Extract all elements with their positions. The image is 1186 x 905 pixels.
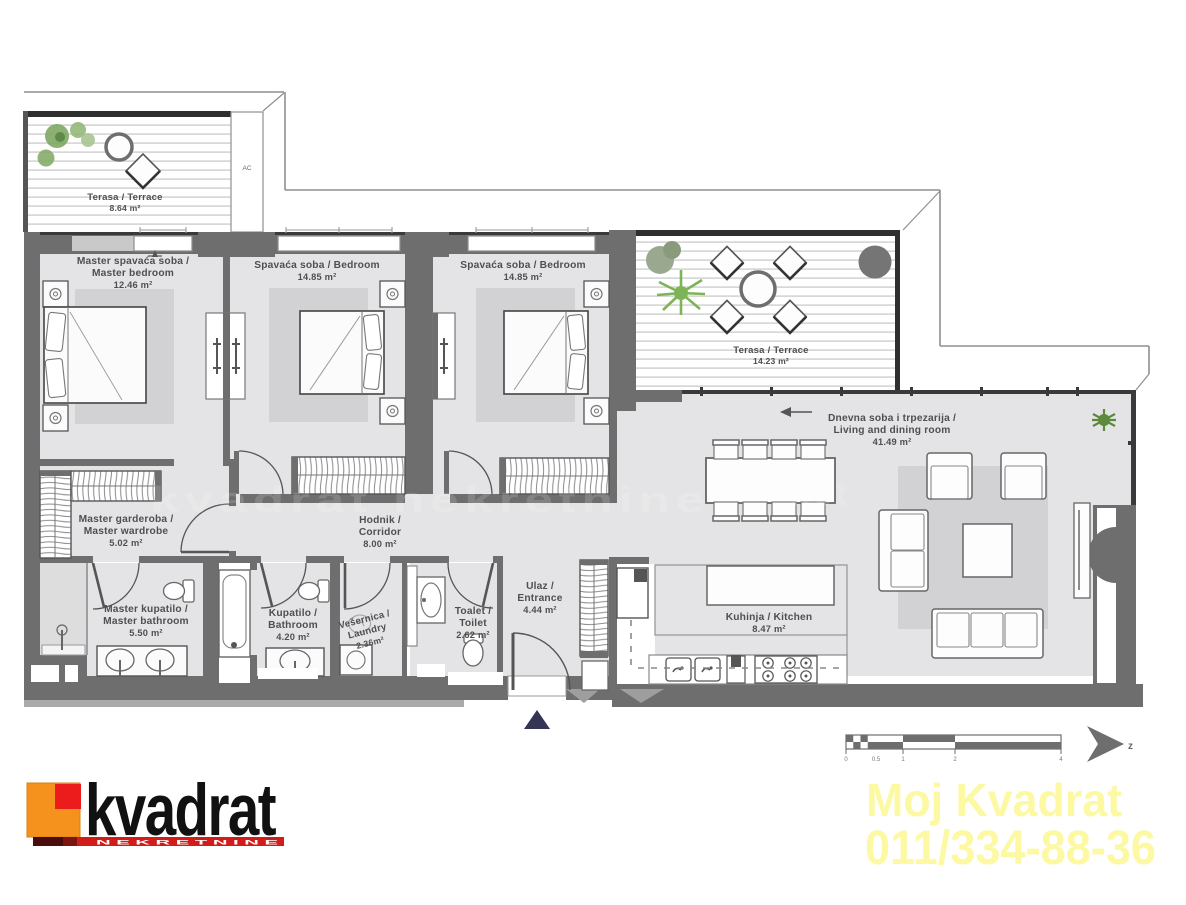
svg-text:Toilet: Toilet xyxy=(459,618,487,629)
svg-text:011/334-88-36: 011/334-88-36 xyxy=(865,822,1156,875)
svg-text:8.00 m²: 8.00 m² xyxy=(363,539,396,549)
svg-text:Bathroom: Bathroom xyxy=(268,620,318,631)
svg-text:Terasa / Terrace: Terasa / Terrace xyxy=(87,192,162,203)
svg-text:z: z xyxy=(1128,741,1133,752)
svg-text:Spavaća soba / Bedroom: Spavaća soba / Bedroom xyxy=(460,260,586,271)
svg-text:2.62 m²: 2.62 m² xyxy=(456,630,489,640)
svg-text:Master bathroom: Master bathroom xyxy=(103,616,189,627)
svg-text:5.50 m²: 5.50 m² xyxy=(129,628,162,638)
svg-text:14.23 m²: 14.23 m² xyxy=(753,356,789,366)
svg-text:Living and dining room: Living and dining room xyxy=(833,425,950,436)
svg-text:Dnevna soba i trpezarija /: Dnevna soba i trpezarija / xyxy=(828,413,956,424)
svg-text:Master kupatilo /: Master kupatilo / xyxy=(104,604,188,615)
svg-text:14.85 m²: 14.85 m² xyxy=(298,272,337,282)
svg-text:Spavaća soba / Bedroom: Spavaća soba / Bedroom xyxy=(254,260,380,271)
svg-text:14.85 m²: 14.85 m² xyxy=(504,272,543,282)
svg-text:Master wardrobe: Master wardrobe xyxy=(84,526,169,537)
svg-text:Ulaz /: Ulaz / xyxy=(526,581,554,592)
svg-text:Corridor: Corridor xyxy=(359,527,401,538)
svg-text:Entrance: Entrance xyxy=(517,593,562,604)
svg-text:8.47 m²: 8.47 m² xyxy=(752,624,785,634)
svg-text:Master spavaća soba /: Master spavaća soba / xyxy=(77,256,189,267)
svg-text:5.02 m²: 5.02 m² xyxy=(109,538,142,548)
svg-text:41.49 m²: 41.49 m² xyxy=(873,437,912,447)
svg-text:net: net xyxy=(790,475,850,513)
svg-text:Kupatilo /: Kupatilo / xyxy=(269,608,317,619)
svg-text:Toalet /: Toalet / xyxy=(455,606,492,617)
svg-text:4.44 m²: 4.44 m² xyxy=(523,605,556,615)
svg-text:12.46 m²: 12.46 m² xyxy=(114,280,153,290)
svg-text:Kuhinja / Kitchen: Kuhinja / Kitchen xyxy=(726,612,813,623)
svg-text:0.5: 0.5 xyxy=(872,757,881,763)
svg-text:8.64 m²: 8.64 m² xyxy=(109,203,140,213)
svg-text:kvadrat nekretnine: kvadrat nekretnine xyxy=(150,479,710,520)
svg-text:Moj Kvadrat: Moj Kvadrat xyxy=(866,774,1122,826)
svg-text:Terasa / Terrace: Terasa / Terrace xyxy=(733,345,808,356)
svg-text:4.20 m²: 4.20 m² xyxy=(276,632,309,642)
svg-text:N E K R E T N I N E: N E K R E T N I N E xyxy=(96,840,280,847)
svg-text:Master bedroom: Master bedroom xyxy=(92,268,174,279)
svg-text:AC: AC xyxy=(242,165,251,172)
